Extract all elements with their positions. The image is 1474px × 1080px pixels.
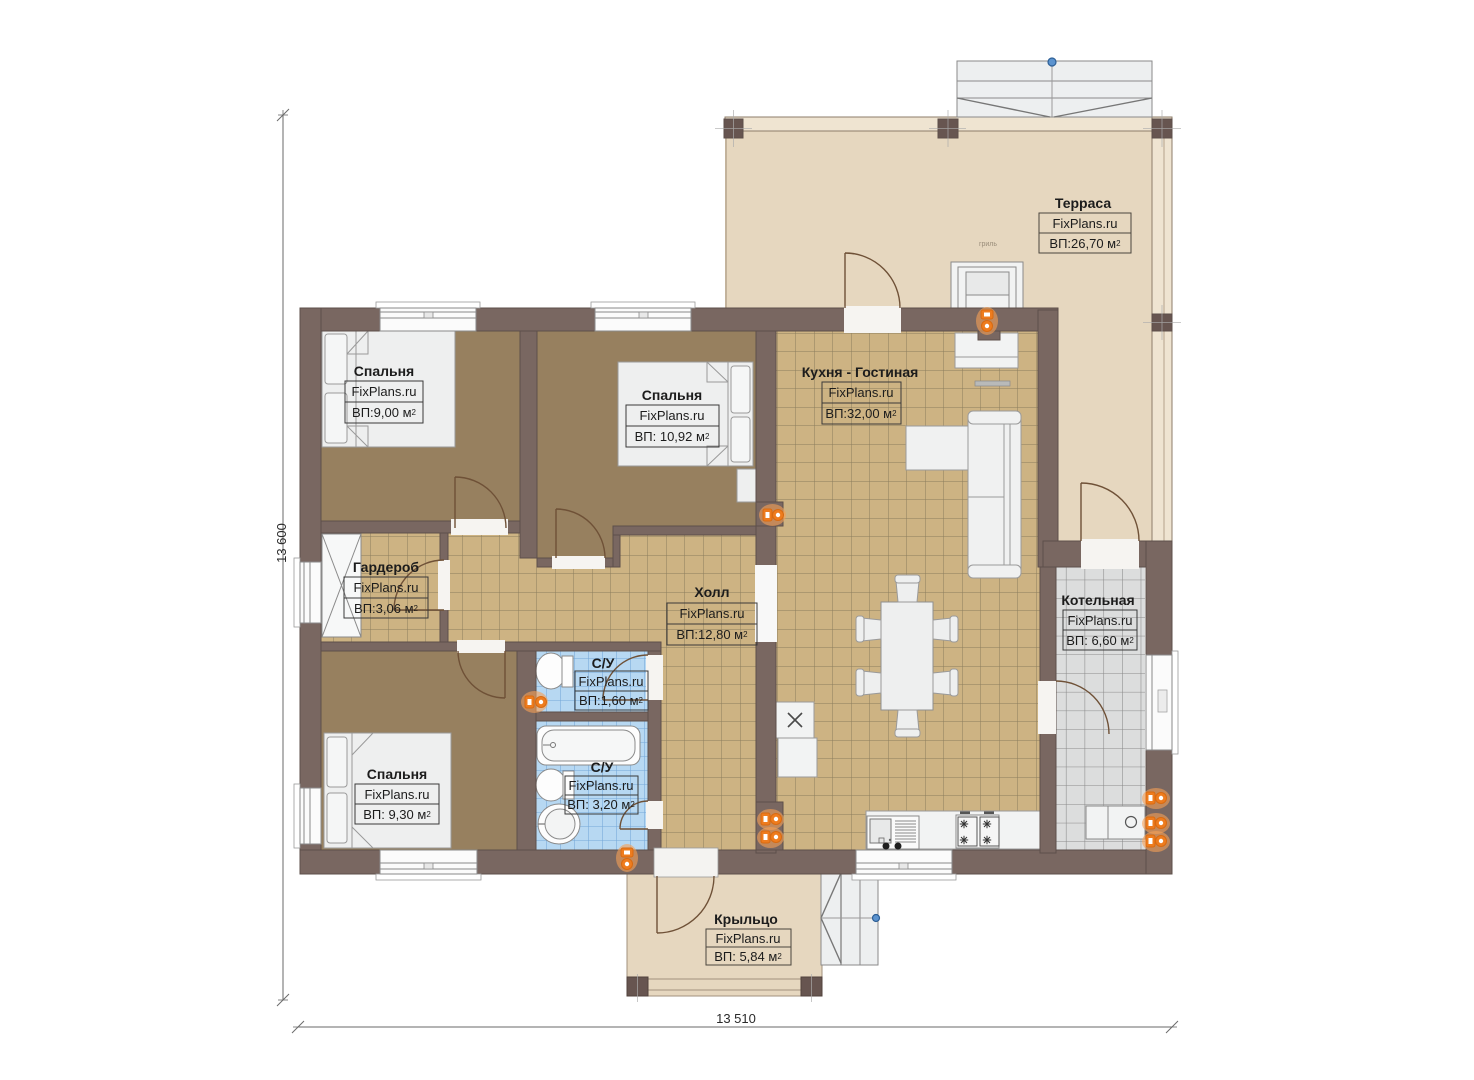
svg-text:ВП:26,70 м2: ВП:26,70 м2: [1049, 236, 1121, 251]
svg-text:Спальня: Спальня: [642, 387, 702, 403]
svg-text:С/У: С/У: [592, 655, 615, 671]
svg-text:ВП: 9,30 м2: ВП: 9,30 м2: [363, 807, 431, 822]
svg-text:FixPlans.ru: FixPlans.ru: [1067, 613, 1132, 628]
svg-text:ВП:1,60 м2: ВП:1,60 м2: [579, 693, 643, 708]
svg-text:13 510: 13 510: [716, 1011, 756, 1026]
svg-text:Гардероб: Гардероб: [353, 559, 420, 575]
svg-text:Терраса: Терраса: [1055, 195, 1111, 211]
svg-text:FixPlans.ru: FixPlans.ru: [568, 778, 633, 793]
svg-text:FixPlans.ru: FixPlans.ru: [639, 408, 704, 423]
svg-text:гриль: гриль: [979, 241, 997, 248]
svg-text:ВП: 6,60 м2: ВП: 6,60 м2: [1066, 633, 1134, 648]
svg-text:Холл: Холл: [694, 584, 729, 600]
svg-text:FixPlans.ru: FixPlans.ru: [1052, 216, 1117, 231]
svg-text:ВП:9,00 м2: ВП:9,00 м2: [352, 405, 416, 420]
svg-text:ВП:3,06 м2: ВП:3,06 м2: [354, 601, 418, 616]
svg-text:FixPlans.ru: FixPlans.ru: [364, 787, 429, 802]
svg-text:FixPlans.ru: FixPlans.ru: [679, 606, 744, 621]
svg-text:ВП: 5,84 м2: ВП: 5,84 м2: [714, 949, 782, 964]
svg-text:Спальня: Спальня: [367, 766, 427, 782]
svg-text:FixPlans.ru: FixPlans.ru: [353, 580, 418, 595]
svg-text:FixPlans.ru: FixPlans.ru: [828, 385, 893, 400]
svg-text:Котельная: Котельная: [1061, 592, 1134, 608]
svg-text:FixPlans.ru: FixPlans.ru: [715, 931, 780, 946]
svg-text:FixPlans.ru: FixPlans.ru: [351, 384, 416, 399]
svg-text:С/У: С/У: [591, 759, 614, 775]
svg-text:Крыльцо: Крыльцо: [714, 911, 778, 927]
svg-text:ВП:32,00 м2: ВП:32,00 м2: [825, 406, 897, 421]
svg-text:ВП:12,80 м2: ВП:12,80 м2: [676, 627, 748, 642]
svg-text:ВП: 3,20 м2: ВП: 3,20 м2: [567, 797, 635, 812]
svg-text:FixPlans.ru: FixPlans.ru: [578, 674, 643, 689]
svg-text:ВП: 10,92 м2: ВП: 10,92 м2: [635, 429, 710, 444]
svg-text:Спальня: Спальня: [354, 363, 414, 379]
svg-text:Кухня - Гостиная: Кухня - Гостиная: [802, 364, 919, 380]
svg-text:13 600: 13 600: [274, 523, 289, 563]
